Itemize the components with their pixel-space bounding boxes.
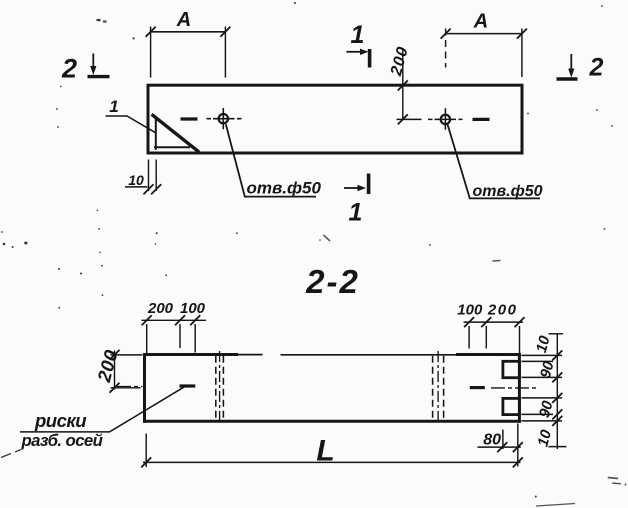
svg-text:100: 100 — [457, 302, 483, 319]
svg-text:1: 1 — [109, 97, 118, 116]
svg-text:2: 2 — [589, 54, 604, 82]
svg-text:отв.ф50: отв.ф50 — [247, 179, 322, 198]
svg-text:1: 1 — [349, 199, 363, 227]
svg-text:200: 200 — [487, 302, 518, 319]
svg-text:риски: риски — [34, 410, 86, 431]
svg-text:80: 80 — [483, 432, 501, 449]
svg-text:1: 1 — [351, 21, 365, 49]
svg-text:2: 2 — [61, 54, 77, 84]
svg-text:L: L — [316, 435, 334, 468]
svg-text:200: 200 — [147, 300, 174, 317]
svg-text:2-2: 2-2 — [305, 263, 360, 300]
svg-text:отв.ф50: отв.ф50 — [473, 183, 543, 200]
svg-text:A: A — [176, 9, 191, 31]
svg-text:A: A — [473, 11, 488, 33]
svg-text:10: 10 — [128, 172, 144, 188]
svg-text:100: 100 — [180, 300, 206, 317]
svg-text:разб. осей: разб. осей — [21, 431, 103, 450]
